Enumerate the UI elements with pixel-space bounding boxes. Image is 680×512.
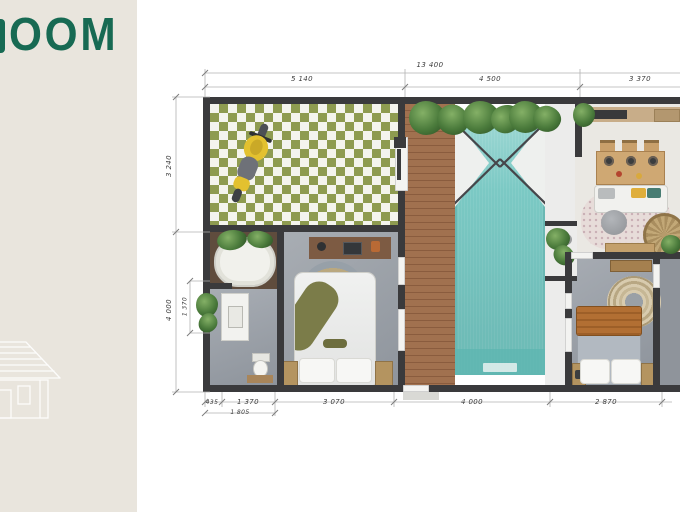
dim-top-seg-3: 3 370 [610, 75, 670, 83]
dim-bottom-seg-2: 1 370 [218, 398, 278, 406]
dim-left-seg-1: 3 240 [165, 136, 173, 196]
dim-top-seg-1: 5 140 [272, 75, 332, 83]
dim-bottom-seg-5: 2 870 [576, 398, 636, 406]
dim-left-inner: 1 370 [182, 277, 189, 337]
dim-bottom-inner: 1 805 [210, 409, 270, 416]
dim-bottom-seg-4: 4 000 [442, 398, 502, 406]
dimension-lines [0, 0, 680, 512]
dim-left-seg-2: 4 000 [165, 280, 173, 340]
dim-bottom-seg-3: 3 070 [304, 398, 364, 406]
page: OOM [0, 0, 680, 512]
dim-top-overall: 13 400 [400, 61, 460, 69]
dim-top-seg-2: 4 500 [460, 75, 520, 83]
